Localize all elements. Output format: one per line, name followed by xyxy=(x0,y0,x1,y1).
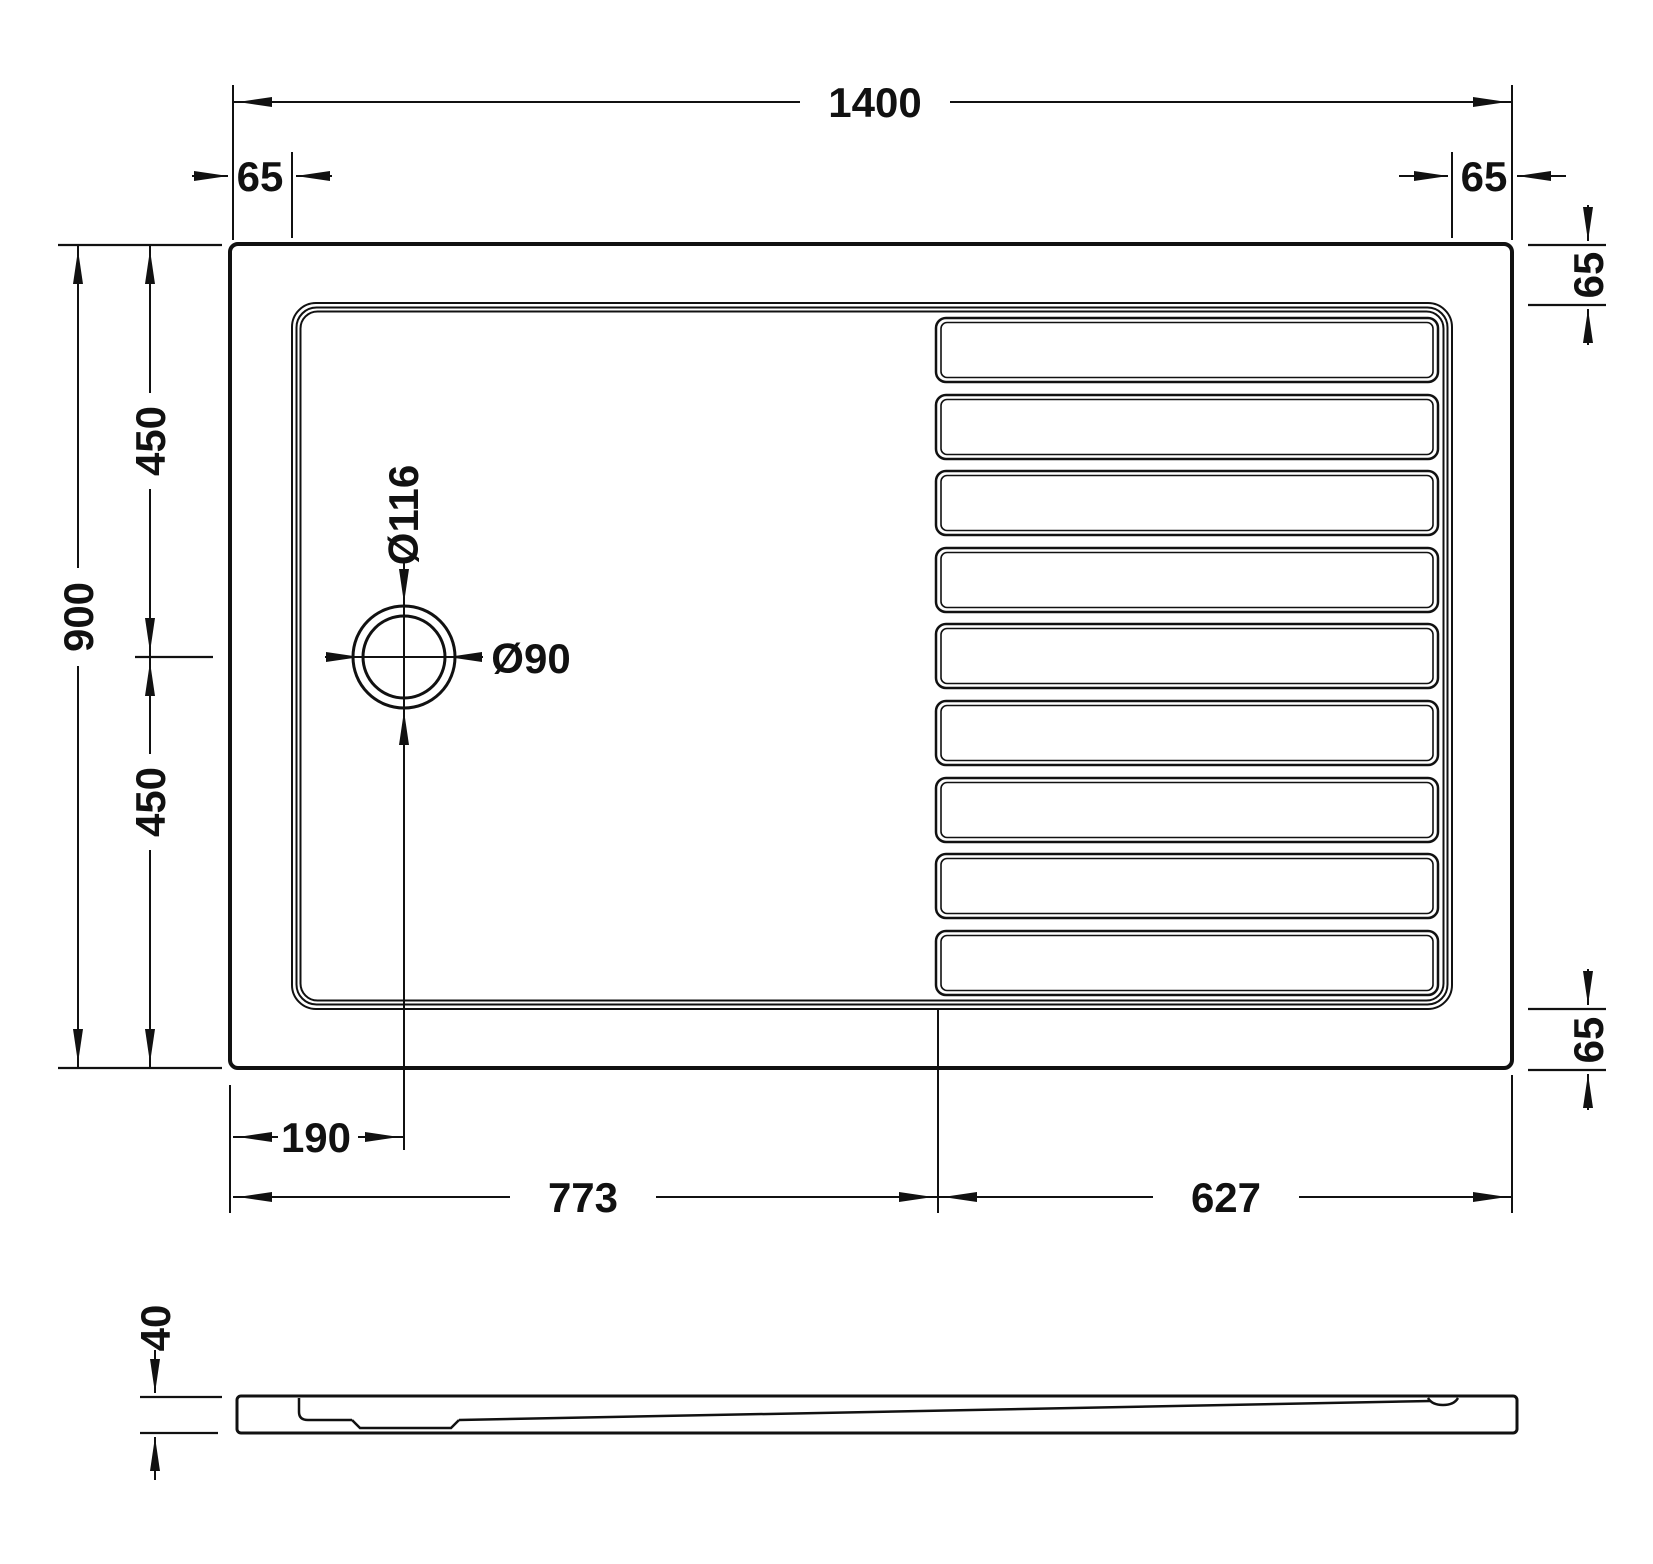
dim-smooth-zone-label: 773 xyxy=(548,1174,618,1221)
dim-drain-offset-label: 190 xyxy=(281,1114,351,1161)
ridge-8 xyxy=(936,854,1438,918)
dim-depth: 900 xyxy=(55,245,102,1068)
ridge-9 xyxy=(936,931,1438,995)
ridge-outer xyxy=(936,778,1438,842)
ridge-7 xyxy=(936,778,1438,842)
dim-ridged-zone-label: 627 xyxy=(1191,1174,1261,1221)
ridge-outer xyxy=(936,471,1438,535)
ridge-2 xyxy=(936,395,1438,459)
dim-depth-upper: 450 xyxy=(127,245,174,657)
dim-rim-right-top-label: 65 xyxy=(1565,252,1612,299)
dim-rim-top-left-label: 65 xyxy=(237,153,284,200)
shower-tray-drawing: 1400 65 65 65 xyxy=(0,0,1653,1564)
dim-depth-label: 900 xyxy=(55,582,102,652)
dim-rim-top-right-label: 65 xyxy=(1461,153,1508,200)
dim-height: 40 xyxy=(132,1305,222,1480)
dim-depth-lower: 450 xyxy=(127,657,174,1068)
dim-drain-inner-dia-label: Ø90 xyxy=(491,635,570,682)
ridge-6 xyxy=(936,701,1438,765)
ridge-1 xyxy=(936,318,1438,382)
dim-rim-right-top: 65 xyxy=(1528,205,1612,345)
ridge-outer xyxy=(936,854,1438,918)
dim-drain-outer-dia-label: Ø116 xyxy=(380,465,427,565)
ridge-outer xyxy=(936,624,1438,688)
dim-width: 1400 xyxy=(233,79,1512,240)
dim-rim-top-left: 65 xyxy=(192,152,332,238)
ridge-5 xyxy=(936,624,1438,688)
dim-depth-lower-label: 450 xyxy=(127,767,174,837)
ridge-4 xyxy=(936,548,1438,612)
dim-rim-right-bottom: 65 xyxy=(1528,969,1612,1110)
top-view: 1400 65 65 65 xyxy=(55,79,1612,1221)
dim-height-label: 40 xyxy=(132,1305,179,1352)
dim-rim-top-right: 65 xyxy=(1399,152,1566,238)
anti-slip-ridges xyxy=(936,318,1438,995)
technical-drawing-page: 1400 65 65 65 xyxy=(0,0,1653,1564)
dim-rim-right-bottom-label: 65 xyxy=(1565,1017,1612,1064)
side-view: 40 xyxy=(132,1305,1517,1480)
ridge-outer xyxy=(936,318,1438,382)
dim-depth-upper-label: 450 xyxy=(127,406,174,476)
ridge-outer xyxy=(936,395,1438,459)
ridge-outer xyxy=(936,931,1438,995)
dim-drain-offset: 190 xyxy=(230,1085,404,1213)
ridge-outer xyxy=(936,548,1438,612)
ridge-3 xyxy=(936,471,1438,535)
ridge-outer xyxy=(936,701,1438,765)
dim-width-label: 1400 xyxy=(828,79,921,126)
